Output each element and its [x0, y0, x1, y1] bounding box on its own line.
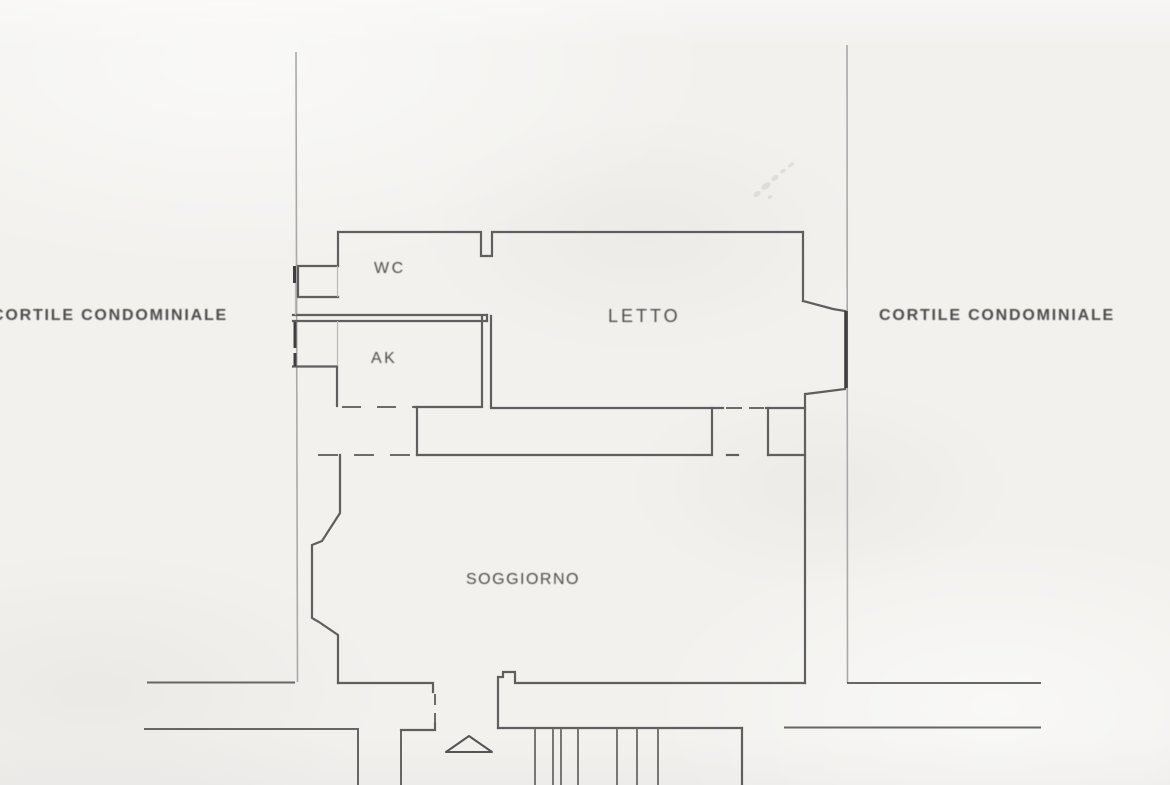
room-label-wc: WC	[374, 260, 406, 278]
landing-walls	[145, 683, 1040, 785]
room-label-soggiorno: SOGGIORNO	[466, 571, 580, 589]
room-label-ak: AK	[371, 350, 397, 368]
pencil-smudge	[752, 162, 795, 200]
floor-plan-canvas	[0, 0, 1170, 785]
stair-treads	[535, 728, 658, 785]
label-courtyard-right: CORTILE CONDOMINIALE	[879, 307, 1115, 325]
floor-plan-page: CORTILE CONDOMINIALE CORTILE CONDOMINIAL…	[0, 0, 1170, 785]
label-courtyard-left: CORTILE CONDOMINIALE	[0, 307, 228, 325]
apartment-walls	[293, 232, 845, 785]
window-marks	[295, 266, 847, 388]
door-swing-icon	[446, 736, 492, 752]
room-label-letto: LETTO	[608, 306, 681, 327]
